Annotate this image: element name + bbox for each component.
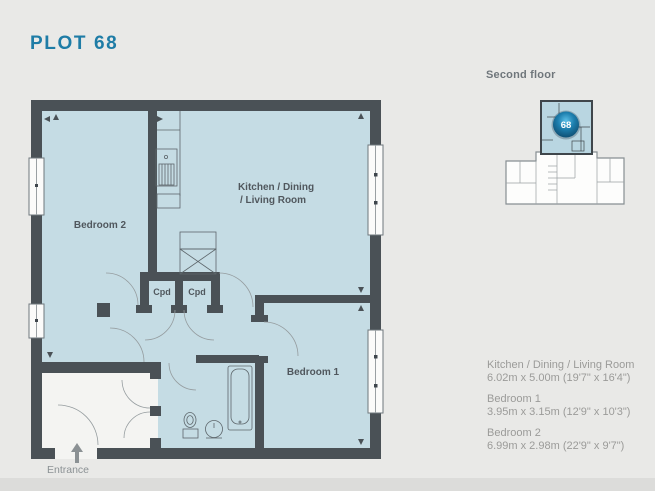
- bedroom1-label: Bedroom 1: [287, 367, 340, 378]
- dimension-room-size: 3.95m x 3.15m (12'9" x 10'3"): [487, 406, 652, 419]
- key-plan: 68: [506, 101, 624, 204]
- kitchen-label-line2: / Living Room: [240, 195, 306, 206]
- dimension-room-name: Bedroom 1: [487, 393, 652, 406]
- bottom-bar: [0, 478, 655, 491]
- dimension-item: Bedroom 1 3.95m x 3.15m (12'9" x 10'3"): [487, 393, 652, 419]
- dimension-room-size: 6.99m x 2.98m (22'9" x 9'7"): [487, 440, 652, 453]
- kitchen-label-line1: Kitchen / Dining: [238, 182, 314, 193]
- floor-plan: Bedroom 2 Kitchen / Dining / Living Room…: [29, 100, 383, 476]
- dimension-item: Kitchen / Dining / Living Room 6.02m x 5…: [487, 359, 652, 385]
- entrance-label: Entrance: [47, 464, 89, 476]
- dimension-item: Bedroom 2 6.99m x 2.98m (22'9" x 9'7"): [487, 427, 652, 453]
- cupboard1-label: Cpd: [153, 287, 171, 297]
- dimensions-list: Kitchen / Dining / Living Room 6.02m x 5…: [487, 359, 652, 461]
- bedroom2-label: Bedroom 2: [74, 220, 127, 231]
- dimension-room-name: Bedroom 2: [487, 427, 652, 440]
- entrance-hall-floor: [42, 373, 158, 448]
- dimension-room-size: 6.02m x 5.00m (19'7" x 16'4"): [487, 372, 652, 385]
- plot-badge-number: 68: [561, 120, 572, 131]
- dimension-room-name: Kitchen / Dining / Living Room: [487, 359, 652, 372]
- cupboard2-label: Cpd: [188, 287, 206, 297]
